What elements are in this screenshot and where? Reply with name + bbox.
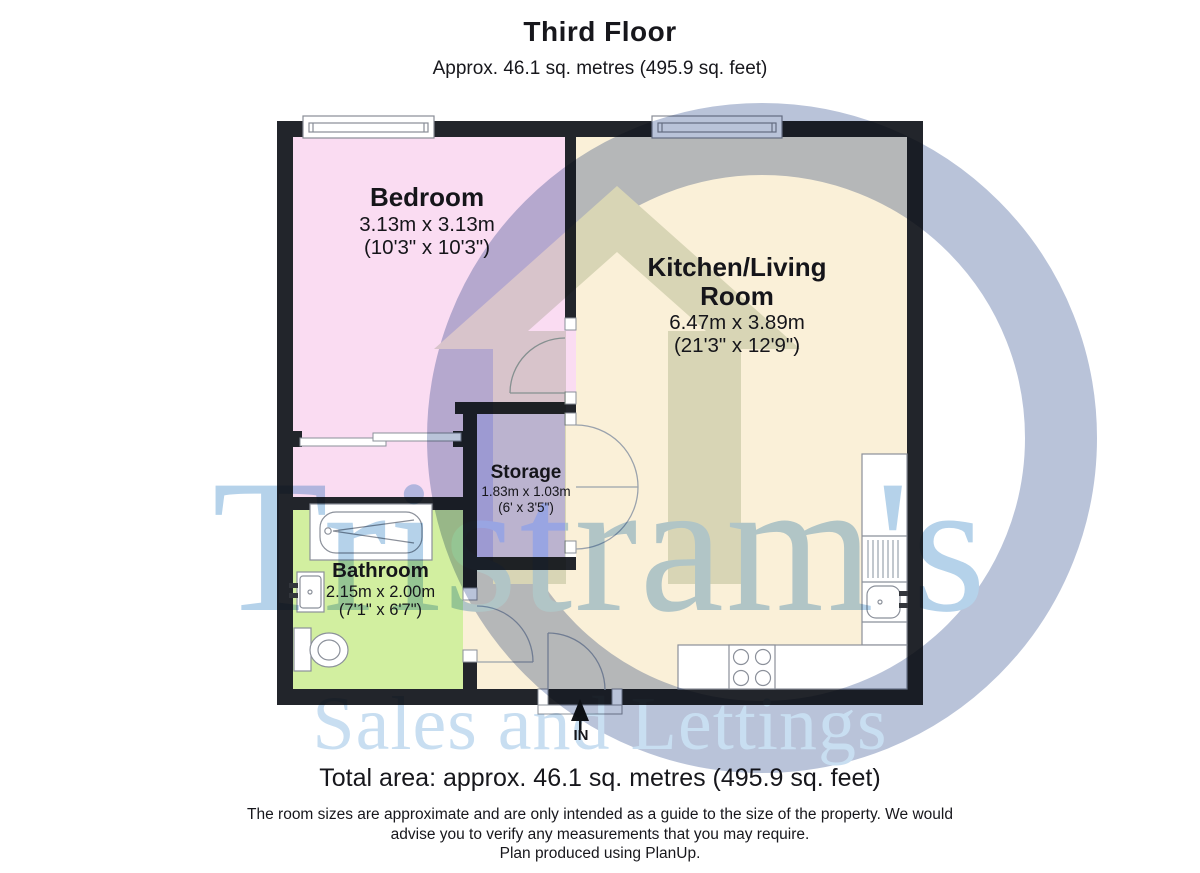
hallway-floor: [463, 570, 576, 689]
bedroom-door-jamb-top: [565, 318, 576, 330]
bathtub-icon: [310, 504, 432, 560]
bathroom-door-jamb-bottom: [463, 650, 477, 662]
storage-bottom-wall: [463, 557, 576, 570]
bedroom-window-icon: [303, 116, 434, 138]
kitchen-counter-bottom: [678, 645, 907, 689]
bedroom-doorway-floor: [565, 330, 576, 392]
storage-door-jamb-top: [565, 413, 576, 425]
kitchen-floor: [576, 137, 907, 689]
floorplan-drawing: [0, 0, 1200, 873]
bathroom-right-wall-lower: [463, 662, 477, 689]
kitchen-window-icon: [652, 116, 782, 138]
bedroom-door-jamb-bottom: [565, 392, 576, 404]
bedroom-floor: [293, 137, 565, 403]
entrance-jamb-left: [538, 689, 548, 705]
drainer-icon: [868, 540, 898, 578]
bedroom-alcove-floor: [293, 403, 463, 498]
storage-floor: [477, 413, 565, 557]
entrance-jamb-right: [612, 689, 622, 705]
hob-icon: [729, 645, 775, 689]
floorplan-page: Third Floor Approx. 46.1 sq. metres (495…: [0, 0, 1200, 873]
room-fills: [293, 137, 907, 705]
bedroom-kitchen-wall: [565, 137, 576, 318]
bathroom-door-jamb-top: [463, 588, 477, 600]
bathroom-right-wall-upper: [463, 510, 477, 588]
storage-doorway-floor: [565, 425, 576, 541]
storage-door-jamb-bottom: [565, 541, 576, 553]
